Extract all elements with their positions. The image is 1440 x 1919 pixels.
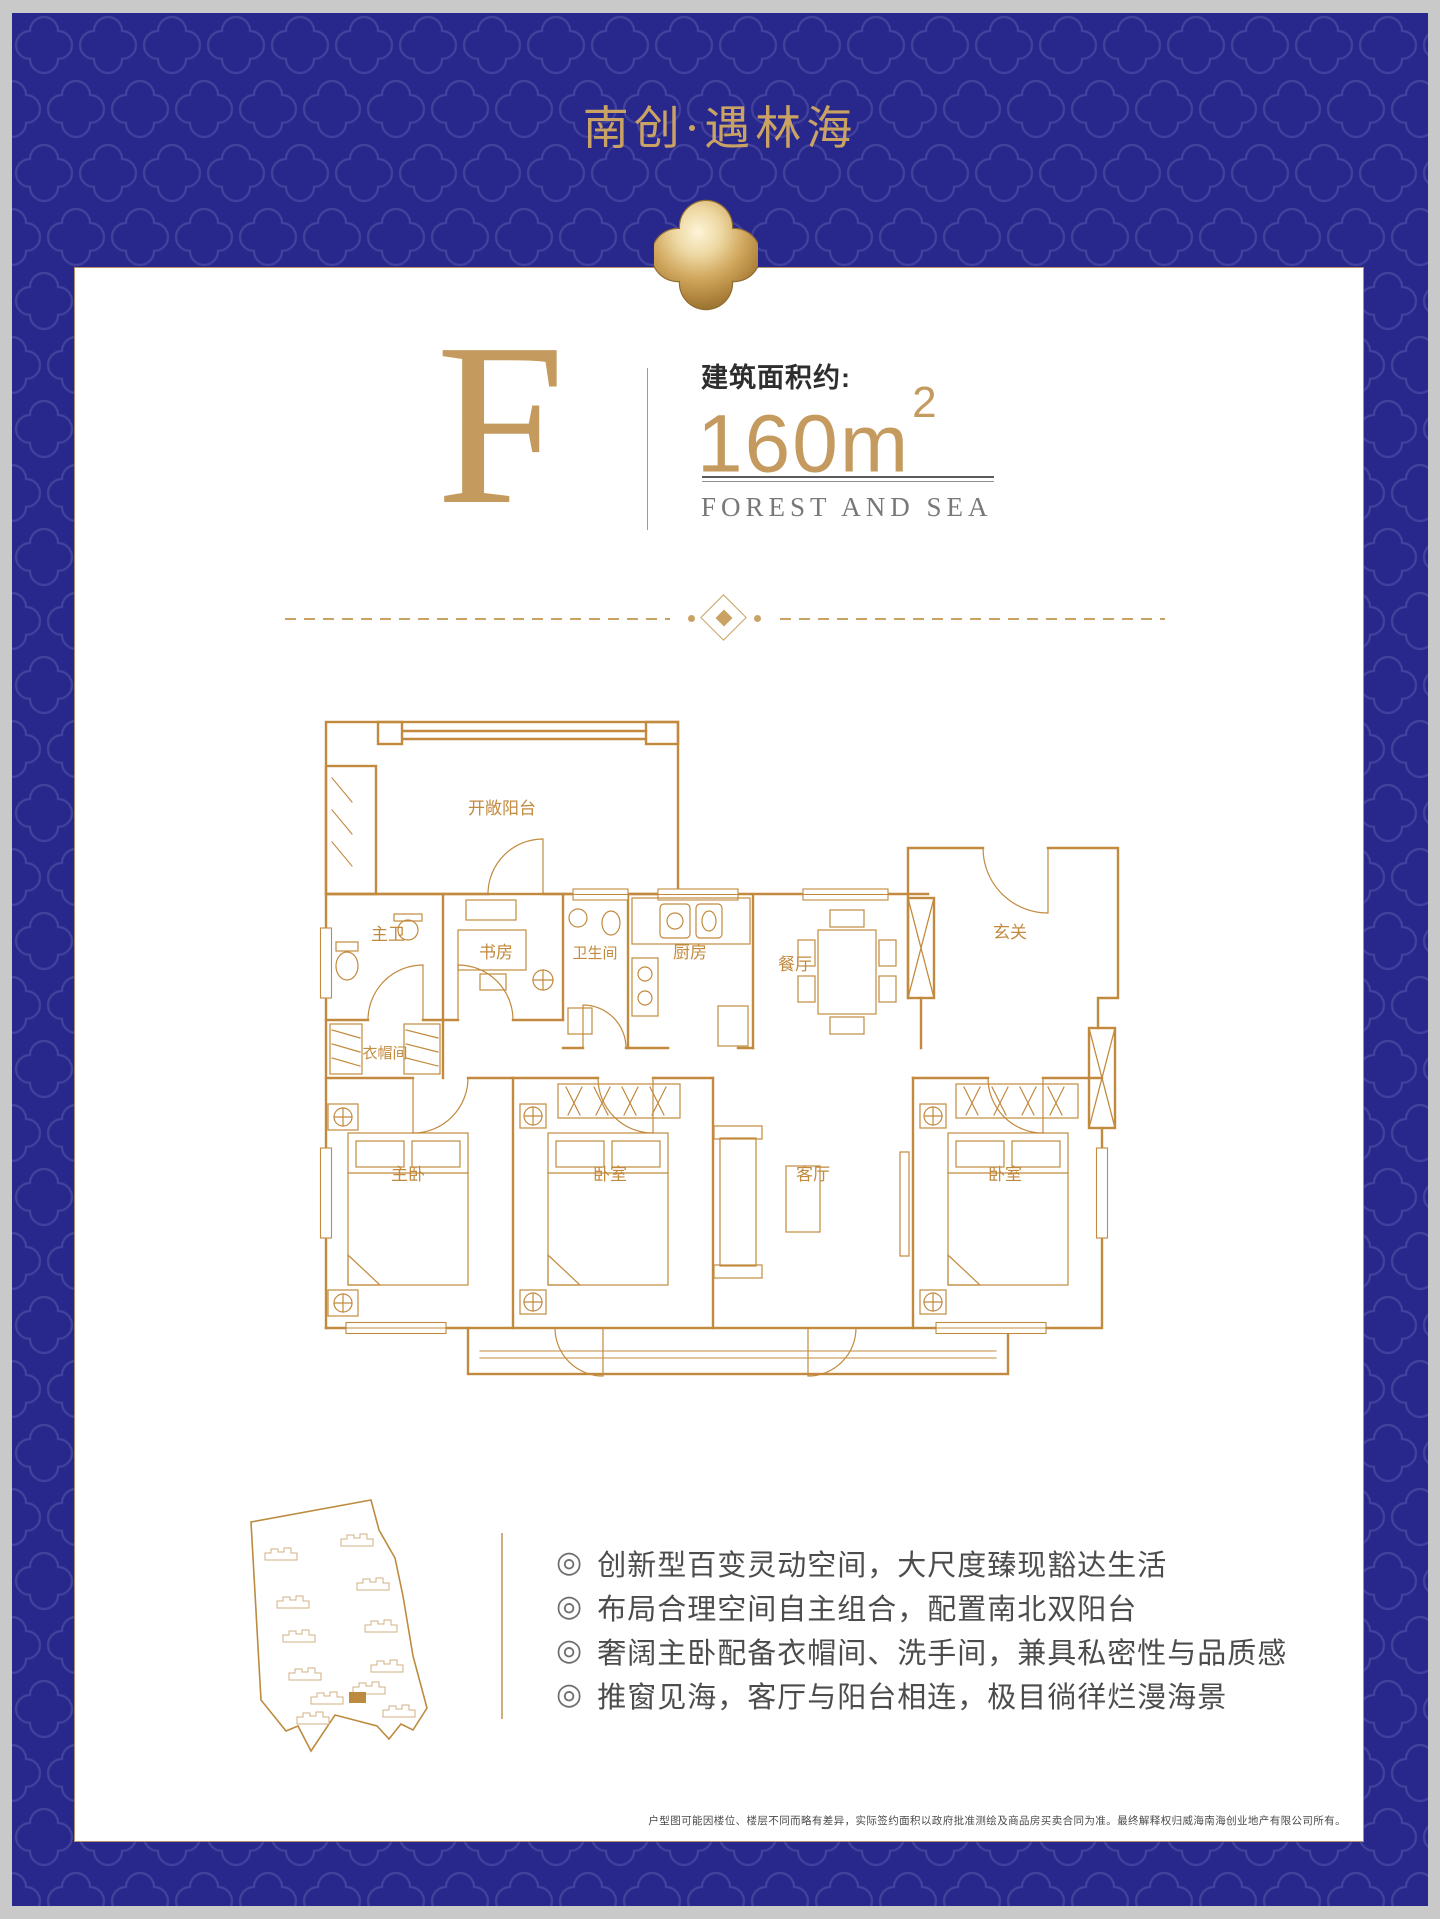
feature-item: ◎ 推窗见海，客厅与阳台相连，极目徜徉烂漫海景: [556, 1673, 1287, 1717]
features-divider: [501, 1533, 503, 1719]
floor-plan: 开敞阳台 主卫 书房 卫生间 厨房 餐厅 玄关 衣帽间 主卧 卧室 客厅 卧室: [308, 718, 1138, 1390]
feature-item: ◎ 创新型百变灵动空间，大尺度臻现豁达生活: [556, 1541, 1287, 1585]
room-label-dining: 餐厅: [778, 955, 812, 974]
unit-letter: F: [436, 330, 596, 540]
bullseye-bullet-icon: ◎: [556, 1548, 583, 1578]
divider-dot-right: [754, 615, 761, 622]
room-label-walkin-closet: 衣帽间: [362, 1045, 407, 1062]
gold-quatrefoil-ornament-icon: [654, 198, 758, 316]
disclaimer-text: 户型图可能因楼位、楼层不同而略有差异，实际签约面积以政府批准测绘及商品房买卖合同…: [440, 1813, 1346, 1828]
feature-item: ◎ 奢阔主卧配备衣帽间、洗手间，兼具私密性与品质感: [556, 1629, 1287, 1673]
feature-text: 奢阔主卧配备衣帽间、洗手间，兼具私密性与品质感: [597, 1630, 1287, 1672]
site-buildings: [265, 1534, 415, 1724]
project-title: 南创·遇林海: [0, 92, 1440, 158]
dashed-divider-right: [780, 618, 1165, 620]
room-label-master-bath: 主卫: [371, 925, 405, 944]
feature-text: 推窗见海，客厅与阳台相连，极目徜徉烂漫海景: [597, 1674, 1227, 1716]
feature-text: 创新型百变灵动空间，大尺度臻现豁达生活: [597, 1542, 1167, 1584]
room-label-foyer: 玄关: [993, 923, 1027, 942]
dashed-divider-left: [285, 618, 670, 620]
site-highlighted-building: [349, 1692, 366, 1703]
bullseye-bullet-icon: ◎: [556, 1636, 583, 1666]
vertical-divider: [647, 368, 648, 530]
bullseye-bullet-icon: ◎: [556, 1680, 583, 1710]
unit-subtitle: FOREST AND SEA: [701, 492, 993, 523]
plan-room-labels: 开敞阳台 主卫 书房 卫生间 厨房 餐厅 玄关 衣帽间 主卧 卧室 客厅 卧室: [362, 799, 1027, 1184]
plan-walls: [326, 722, 1118, 1374]
divider-dot-left: [688, 615, 695, 622]
area-value: 160m2: [697, 388, 937, 485]
room-label-bathroom: 卫生间: [572, 945, 617, 962]
room-label-bedroom-2: 卧室: [593, 1165, 627, 1184]
poster-page: 南创·遇林海 F 建筑面积约: 160m2 FOREST AND SEA: [0, 0, 1440, 1919]
room-label-living-room: 客厅: [796, 1165, 830, 1184]
double-rule: [702, 476, 994, 482]
site-boundary: [251, 1500, 427, 1751]
room-label-kitchen: 厨房: [673, 943, 707, 962]
feature-item: ◎ 布局合理空间自主组合，配置南北双阳台: [556, 1585, 1287, 1629]
room-label-study: 书房: [479, 943, 513, 962]
feature-list: ◎ 创新型百变灵动空间，大尺度臻现豁达生活 ◎ 布局合理空间自主组合，配置南北双…: [556, 1541, 1287, 1717]
room-label-open-balcony: 开敞阳台: [468, 799, 536, 818]
feature-text: 布局合理空间自主组合，配置南北双阳台: [597, 1586, 1137, 1628]
area-superscript: 2: [912, 378, 938, 427]
room-label-bedroom-3: 卧室: [988, 1165, 1022, 1184]
room-label-master-bedroom: 主卧: [391, 1165, 425, 1184]
site-plan: [243, 1496, 433, 1758]
bullseye-bullet-icon: ◎: [556, 1592, 583, 1622]
